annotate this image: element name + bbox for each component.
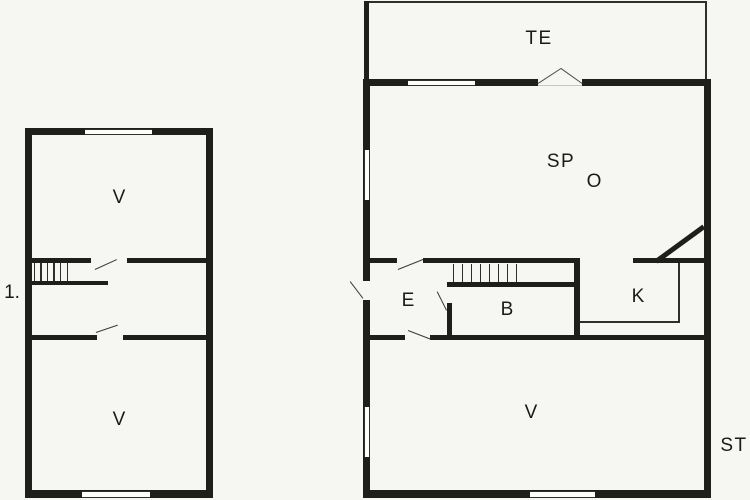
- terrace-edge-left: [364, 1, 369, 79]
- interior-wall: [127, 258, 206, 263]
- interior-wall: [370, 335, 405, 340]
- stair-tread: [53, 263, 55, 281]
- door-swing: [398, 259, 423, 270]
- stair-tread: [471, 264, 473, 283]
- room-label-e: E: [402, 290, 415, 312]
- window: [364, 150, 370, 200]
- floor-number-label: 1.: [4, 282, 20, 304]
- room-label-v-bottom: V: [113, 409, 126, 431]
- wall-left: [25, 128, 32, 498]
- interior-wall: [370, 258, 397, 263]
- stair-tread: [34, 263, 36, 281]
- stair-tread: [453, 264, 455, 283]
- stair-tread: [60, 263, 62, 281]
- window: [85, 129, 152, 136]
- interior-wall: [633, 258, 704, 263]
- stair-tread: [489, 264, 491, 283]
- bath-wall-left: [447, 303, 452, 335]
- room-label-v-top: V: [113, 187, 126, 209]
- window: [530, 491, 595, 498]
- room-label-sp: SP: [547, 151, 575, 173]
- stair-tread: [480, 264, 482, 283]
- room-label-o: O: [587, 171, 602, 193]
- room-label-v: V: [525, 402, 538, 424]
- wall-right: [206, 128, 213, 498]
- interior-wall: [123, 335, 206, 340]
- stair-tread: [40, 263, 42, 281]
- kitchen-boundary-vertical: [678, 263, 680, 322]
- door-swing: [96, 325, 118, 334]
- bath-wall-top: [447, 282, 574, 287]
- entry-door-opening: [363, 281, 370, 300]
- terrace-door-threshold: [538, 85, 582, 86]
- stair-tread: [462, 264, 464, 283]
- room-label-k: K: [632, 286, 645, 308]
- kitchen-boundary-horizontal: [580, 321, 680, 323]
- interior-wall: [574, 258, 580, 340]
- window: [408, 80, 475, 86]
- stair-tread: [67, 263, 69, 281]
- stair-tread: [516, 264, 518, 283]
- floorplan-canvas: V V 1. TE: [0, 0, 750, 500]
- window: [364, 407, 370, 457]
- wall-right: [704, 79, 711, 498]
- interior-wall: [30, 335, 97, 340]
- exterior-label-st: ST: [720, 435, 747, 457]
- interior-wall: [430, 335, 704, 340]
- stair-tread: [507, 264, 509, 283]
- terrace-edge-right: [705, 1, 707, 79]
- door-swing: [95, 259, 118, 270]
- door-swing: [408, 330, 431, 340]
- window: [82, 491, 150, 498]
- room-label-b: B: [501, 299, 514, 321]
- stair-tread: [47, 263, 49, 281]
- terrace-edge-top: [366, 1, 706, 3]
- door-swing: [349, 281, 363, 299]
- door-swing: [436, 291, 447, 311]
- terrace-label: TE: [525, 28, 552, 50]
- stair-tread: [498, 264, 500, 283]
- interior-wall: [423, 258, 578, 263]
- stair-edge: [31, 281, 108, 285]
